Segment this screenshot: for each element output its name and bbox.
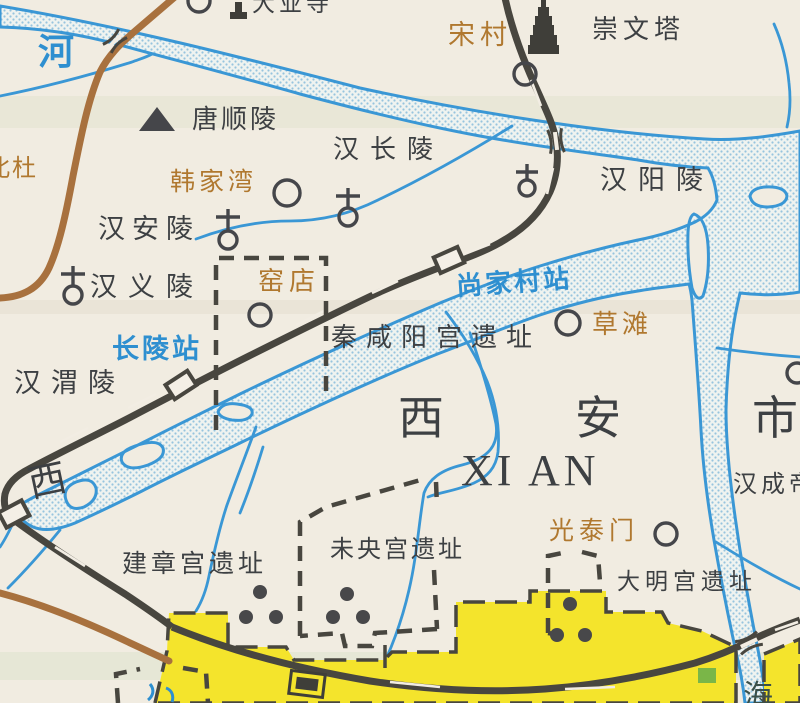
label-hanchengdi: 汉成帝 [733,470,800,498]
map-canvas: 大业寺 宋村 崇文塔 河 唐顺陵 汉长陵 汉阳陵 韩家湾 汉安陵 北杜 汉义陵 … [0,0,800,703]
label-beidu: 北杜 [0,154,38,182]
scanned-city-map: 大业寺 宋村 崇文塔 河 唐顺陵 汉长陵 汉阳陵 韩家湾 汉安陵 北杜 汉义陵 … [0,0,800,703]
label-river-char: 河 [38,32,74,73]
label-songcun: 宋村 [448,20,512,51]
label-tangshunling: 唐顺陵 [192,105,279,135]
label-yaodian: 窑店 [258,267,320,297]
label-hanweiling: 汉渭陵 [14,368,125,399]
railway-bridge-icon [548,128,565,154]
green-patch [698,668,716,683]
label-chongwenta: 崇文塔 [592,15,685,45]
label-qin-xianyang-site: 秦咸阳宫遗址 [331,323,541,353]
label-hanyangling: 汉阳陵 [600,165,714,196]
label-city-name-en: XI AN [461,446,600,495]
label-guangtaimen: 光泰门 [549,516,639,545]
label-caotan: 草滩 [592,310,652,340]
label-hanyiling: 汉义陵 [90,272,204,303]
label-hanchangling: 汉长陵 [333,135,444,165]
label-hanjiawan: 韩家湾 [170,167,257,196]
label-hai-fragment: 海 [743,679,773,703]
label-dayesi: 大业寺 [252,0,333,17]
label-hananling: 汉安陵 [98,214,200,245]
label-jianzhang-site: 建章宫遗址 [122,549,267,578]
label-daming-site: 大明宫遗址 [617,569,757,595]
label-city-name-zh: 西安市 [398,391,800,445]
label-weiyang-site: 未央宫遗址 [330,535,465,563]
label-changling-station: 长陵站 [112,334,202,365]
